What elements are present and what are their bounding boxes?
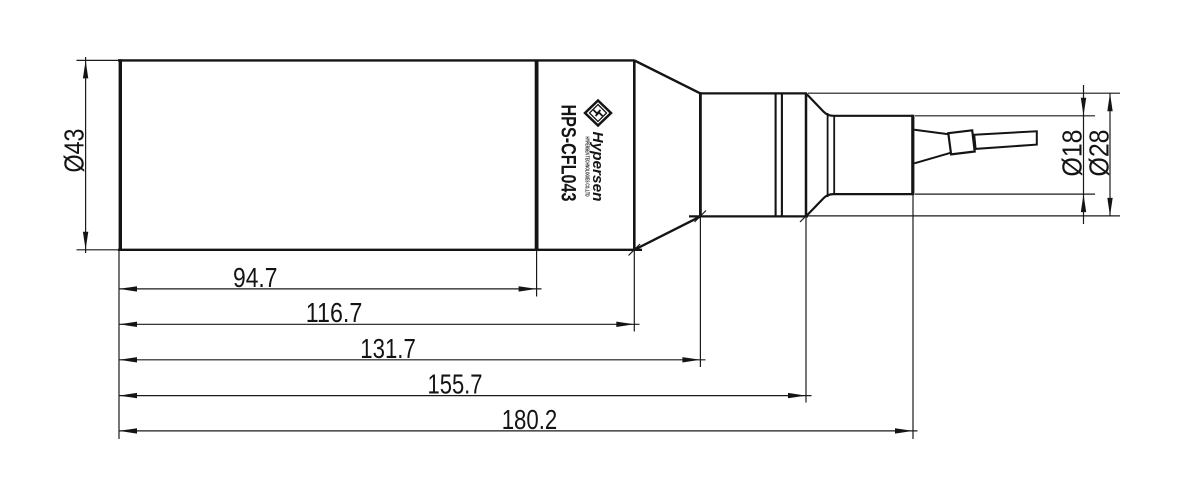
svg-text:Ø43: Ø43 — [59, 129, 90, 173]
svg-text:HYPERSEN TECHNOLOGIES CO.,LTD: HYPERSEN TECHNOLOGIES CO.,LTD — [584, 137, 590, 197]
svg-text:155.7: 155.7 — [428, 369, 483, 400]
svg-text:94.7: 94.7 — [233, 262, 278, 293]
svg-text:131.7: 131.7 — [360, 333, 416, 364]
svg-text:180.2: 180.2 — [502, 404, 558, 435]
svg-text:Hypersen: Hypersen — [589, 132, 605, 202]
svg-text:HPS-CFL043: HPS-CFL043 — [557, 105, 580, 202]
svg-text:116.7: 116.7 — [306, 297, 363, 328]
svg-text:Ø28: Ø28 — [1084, 130, 1115, 177]
